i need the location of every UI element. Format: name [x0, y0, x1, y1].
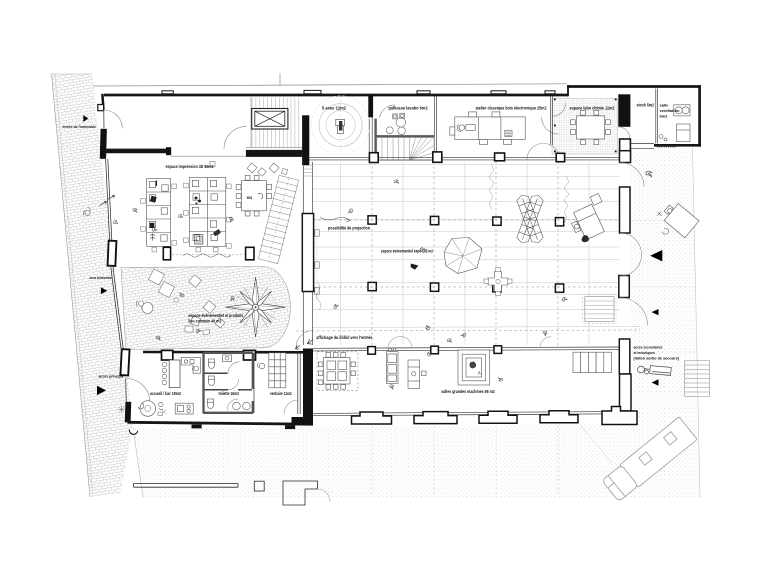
svg-text:espace labo chimie 11m2: espace labo chimie 11m2 — [570, 106, 616, 111]
svg-text:et techniques: et techniques — [634, 350, 656, 355]
svg-text:[ilôlôô sortie de secours]: [ilôlôô sortie de secours] — [634, 355, 680, 360]
svg-text:espace évènementiel et produit: espace évènementiel et produits — [188, 313, 244, 318]
svg-text:espace évènementiel expo 185 m: espace évènementiel expo 185 m2 — [381, 248, 434, 253]
svg-text:salles grandes machines 95 m2: salles grandes machines 95 m2 — [441, 389, 495, 394]
svg-text:accueil / bar 18m2: accueil / bar 18m2 — [150, 391, 182, 396]
svg-text:ventilation: ventilation — [660, 108, 681, 113]
svg-text:affichage du ilôlôô vers l'ent: affichage du ilôlôô vers l'entrée — [316, 335, 373, 340]
svg-text:accès principal: accès principal — [99, 373, 124, 378]
svg-text:vestiaire 11m2: vestiaire 11m2 — [270, 391, 292, 396]
svg-text:6m2: 6m2 — [660, 113, 669, 118]
svg-text:lieu commun 40 m2: lieu commun 40 m2 — [188, 318, 222, 323]
svg-text:espace impression 3D 86m2: espace impression 3D 86m2 — [166, 164, 215, 169]
svg-text:palliasse lavabo 6m2: palliasse lavabo 6m2 — [389, 106, 429, 111]
svg-text:B3: B3 — [247, 195, 253, 200]
svg-text:possibilité de projection: possibilité de projection — [328, 225, 370, 230]
svg-text:atelier classique bois electro: atelier classique bois electronique 25m2 — [476, 106, 548, 111]
svg-text:accès évènementiel: accès évènementiel — [90, 275, 113, 280]
svg-text:accès secondaires: accès secondaires — [634, 345, 664, 350]
svg-text:5 axes 12m2: 5 axes 12m2 — [322, 106, 347, 111]
svg-text:toilette 16m2: toilette 16m2 — [219, 391, 240, 396]
svg-text:entrée de l'immeuble: entrée de l'immeuble — [63, 124, 97, 129]
svg-text:salle: salle — [660, 103, 670, 108]
svg-text:stock 5m2: stock 5m2 — [637, 103, 655, 108]
